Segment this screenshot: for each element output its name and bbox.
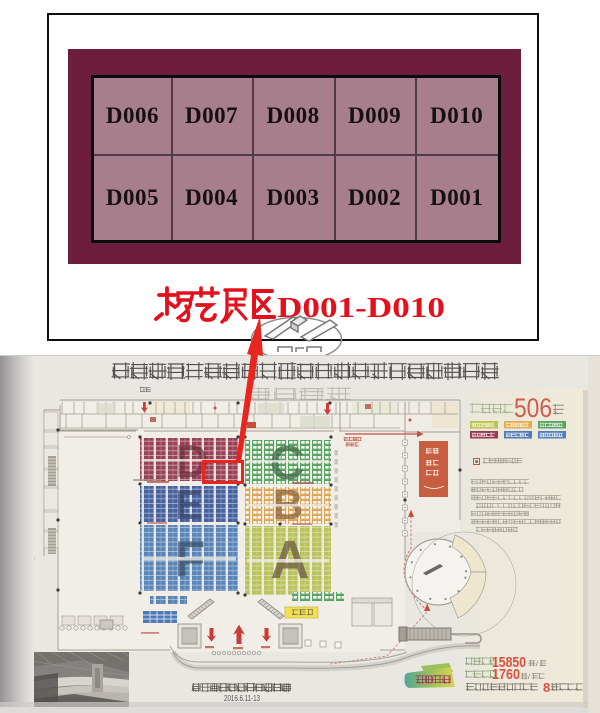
svg-text:/: / — [528, 674, 530, 681]
svg-text:1760: 1760 — [492, 666, 520, 683]
svg-text:8: 8 — [543, 680, 550, 695]
svg-text:E: E — [175, 481, 203, 528]
svg-text:2016.6.11-13: 2016.6.11-13 — [224, 694, 260, 703]
svg-text:506: 506 — [514, 393, 552, 423]
svg-text:/: / — [536, 661, 538, 668]
